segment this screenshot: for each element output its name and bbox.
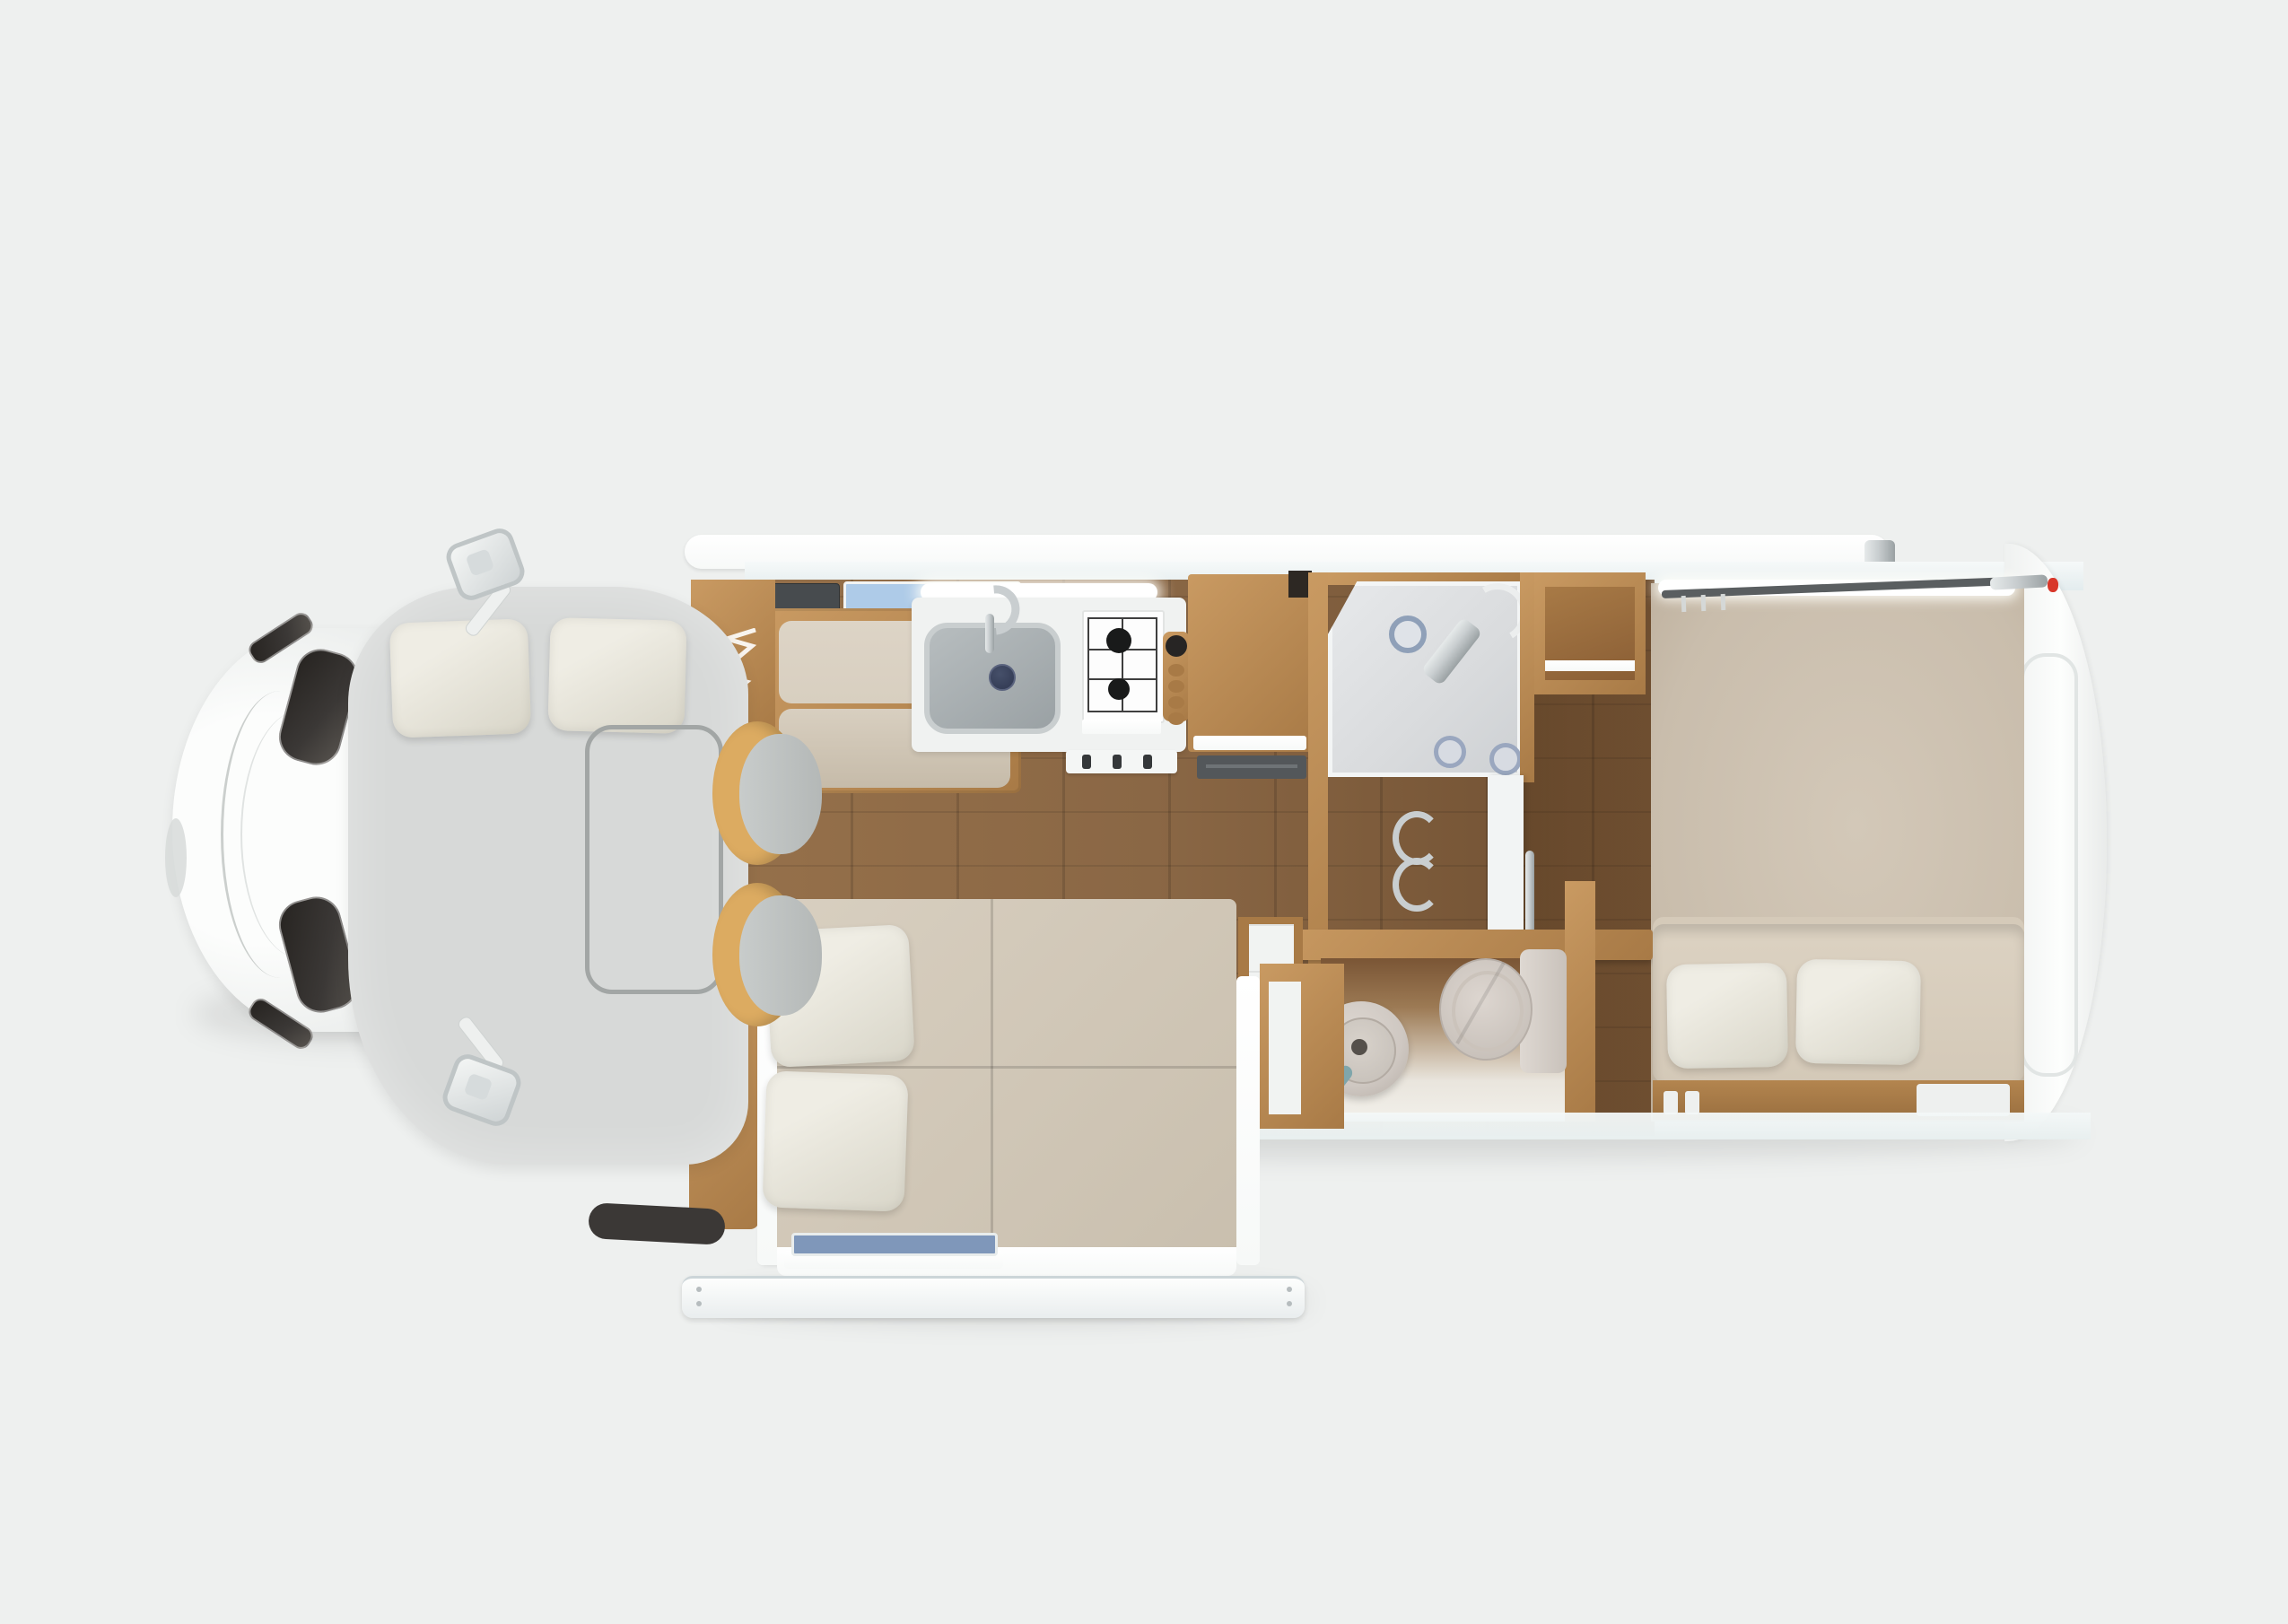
toilet-seat-ring — [1452, 971, 1524, 1052]
swivel-chair-seat — [739, 895, 822, 1016]
slideout-pillow — [762, 1070, 908, 1211]
awning-screw — [696, 1287, 702, 1292]
stove-knob — [1082, 755, 1091, 769]
swivel-chair-seat — [739, 734, 822, 854]
mattress-seam-v — [991, 899, 993, 1260]
shower-wall-right — [1520, 572, 1534, 782]
rv-floorplan-stage — [0, 0, 2288, 1624]
burner-rear — [1108, 678, 1130, 700]
door-handle-icon — [1393, 811, 1441, 865]
wall-switch — [1685, 1091, 1699, 1114]
shower-mixer-dial — [1389, 616, 1427, 653]
overcab-pillow — [547, 617, 686, 734]
sink-drain — [989, 664, 1016, 691]
spice-hole — [1168, 712, 1184, 725]
faucet-stem — [985, 614, 994, 653]
slideout-awning-bar — [682, 1276, 1305, 1318]
door-handle-icon — [1393, 858, 1441, 912]
wall-switch — [1664, 1091, 1678, 1114]
hanger-tick — [1681, 596, 1687, 612]
mirror-glass — [464, 1073, 493, 1101]
range-vent-line — [1206, 764, 1297, 768]
mat-hatch-outline — [585, 725, 723, 994]
slideout-window — [791, 1233, 998, 1256]
awning-screw — [1287, 1287, 1292, 1292]
overcab-pillow — [389, 618, 531, 738]
rear-window-outline — [2021, 653, 2078, 1077]
slideout-cabinet-face — [1269, 982, 1301, 1114]
awning-screw — [1287, 1301, 1292, 1306]
stove-lip — [1082, 720, 1161, 734]
door-window-slash — [588, 1202, 726, 1245]
awning-screw — [696, 1301, 702, 1306]
hanger-tick — [1701, 595, 1707, 611]
bed-pillow — [1795, 959, 1921, 1065]
slideout-wall-right — [1236, 976, 1260, 1265]
mirror-glass — [466, 548, 495, 576]
bed-pillow — [1666, 963, 1788, 1069]
shower-drain — [1489, 743, 1522, 775]
wardrobe-shelf — [1545, 660, 1635, 671]
rear-marker-light — [2048, 578, 2058, 592]
headlight — [165, 818, 187, 897]
bathroom-post-right — [1565, 881, 1595, 1122]
hanger-tick — [1721, 594, 1726, 610]
spice-hole — [1168, 696, 1184, 709]
spice-hole — [1168, 664, 1184, 677]
mattress-seam-h — [777, 1066, 1236, 1069]
worktop-wood — [1188, 574, 1312, 752]
spice-rack-knob — [1166, 635, 1187, 657]
worktop-drawer — [1193, 736, 1306, 750]
stove-knob — [1113, 755, 1122, 769]
bedside-tray — [1917, 1084, 2010, 1116]
spice-hole — [1168, 680, 1184, 693]
burner-front — [1106, 628, 1131, 653]
basin-drain — [1351, 1039, 1367, 1055]
stove-knob — [1143, 755, 1152, 769]
shower-drain — [1434, 736, 1466, 768]
